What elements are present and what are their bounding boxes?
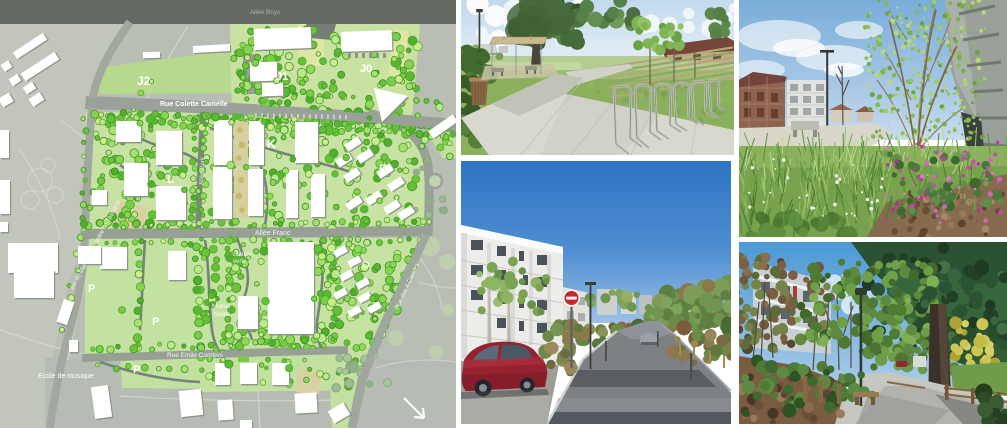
svg-text:Rue Colette Camelle: Rue Colette Camelle — [160, 101, 228, 108]
svg-text:Allée Franc: Allée Franc — [255, 230, 291, 237]
svg-text:J0: J0 — [360, 63, 372, 75]
svg-text:P: P — [133, 364, 140, 376]
svg-text:Morue: Morue — [212, 303, 231, 310]
svg-text:Noire: Noire — [214, 311, 230, 318]
svg-text:P: P — [88, 283, 95, 295]
svg-text:O: O — [362, 260, 370, 271]
svg-text:R: R — [379, 163, 387, 175]
svg-text:Ecole de musique: Ecole de musique — [38, 373, 94, 380]
svg-text:L: L — [167, 172, 174, 186]
svg-text:verte 2: verte 2 — [233, 259, 252, 265]
svg-text:J1: J1 — [276, 71, 288, 83]
svg-text:Allée Boys: Allée Boys — [250, 9, 281, 16]
svg-text:K: K — [267, 137, 276, 151]
svg-text:J2: J2 — [137, 74, 151, 88]
svg-text:Station: Station — [233, 252, 252, 258]
svg-text:Rue Emile Combes: Rue Emile Combes — [167, 352, 224, 359]
svg-text:P: P — [152, 316, 159, 328]
